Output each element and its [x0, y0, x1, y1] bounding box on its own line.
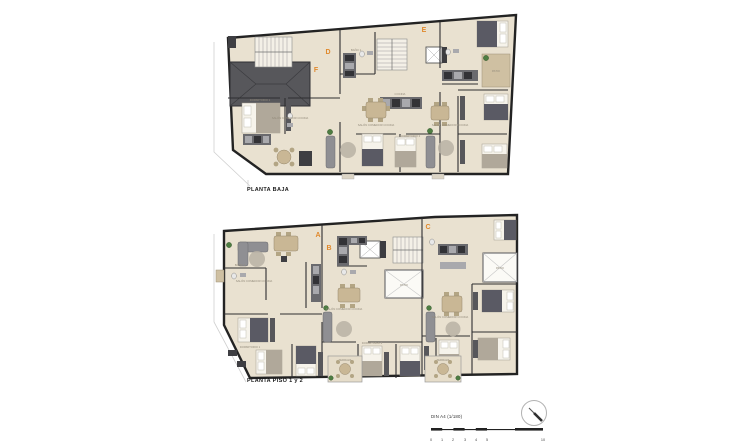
unit-marker-c: C: [425, 224, 430, 231]
wardrobe: [460, 140, 465, 164]
room-label: TERRAZA: [436, 358, 449, 362]
wardrobe: [460, 96, 465, 120]
unit-marker-d: D: [325, 49, 330, 56]
plant-icon: [226, 242, 231, 247]
scale-tick: 2: [452, 438, 454, 442]
staircase: [255, 37, 292, 67]
plant-icon: [327, 129, 332, 134]
bed: [296, 346, 316, 376]
kitchen-counter: [243, 134, 271, 145]
sideboard: [299, 151, 312, 166]
elevator: [426, 47, 447, 63]
rug: [249, 251, 265, 267]
scale-tick: 0: [430, 438, 432, 442]
planta-piso-title: PLANTA PISO 1 y 2: [247, 378, 303, 384]
bed: [362, 346, 382, 376]
louver: [228, 350, 237, 356]
unit-marker-f: F: [314, 67, 319, 74]
room-label: TERRAZA: [338, 358, 351, 362]
sofa: [323, 312, 332, 342]
unit-marker-b: B: [326, 245, 331, 252]
bed: [395, 137, 416, 167]
entry-porch: [228, 36, 236, 48]
bed: [238, 318, 268, 342]
room-label: SALÓN COMEDOR COCINA: [358, 122, 395, 127]
louver: [237, 361, 246, 367]
room-label: SALÓN COMEDOR COCINA: [432, 314, 469, 319]
scale-tick: 10: [541, 438, 545, 442]
unit-marker-a: A: [315, 232, 320, 239]
scale-tick: 3: [464, 438, 466, 442]
sofa: [426, 136, 435, 168]
rug: [438, 140, 454, 156]
room-label: COCINA: [395, 92, 406, 96]
plant-icon: [427, 128, 432, 133]
room-label: DORMITORIO 1: [250, 98, 271, 102]
kitchen-counter: [311, 264, 321, 302]
bed: [256, 350, 282, 374]
room-label: DORMITORIO 2: [362, 341, 383, 345]
room-label: SALÓN COMEDOR COCINA: [326, 306, 363, 311]
bed: [494, 220, 516, 240]
bed: [482, 144, 507, 168]
wardrobe: [473, 292, 478, 310]
scale-tick: 4: [475, 438, 477, 442]
scale-tick: 5: [486, 438, 488, 442]
room-label: DORMITORIO 2: [400, 134, 421, 138]
unit-marker-e: E: [422, 27, 427, 34]
compass-icon: [518, 398, 550, 430]
room-label: PATIO: [496, 266, 505, 270]
room-label: BAÑO 1: [235, 262, 246, 267]
room-label: SALÓN COMEDOR COCINA: [432, 122, 469, 127]
bed: [484, 94, 508, 120]
room-label: BAÑO 1: [351, 47, 362, 52]
bed: [478, 338, 510, 360]
floorplan-sheet: D E F SALÓN COMEDOR COCINA SALÓN COMEDOR…: [0, 0, 756, 443]
wardrobe: [384, 352, 389, 376]
staircase: [393, 237, 423, 263]
wardrobe: [318, 352, 323, 376]
wardrobe: [473, 340, 478, 358]
entry-step: [432, 174, 444, 179]
bed: [477, 21, 508, 47]
bed: [400, 346, 420, 376]
plant-icon: [427, 306, 432, 311]
room-label: SALÓN COMEDOR COCINA: [272, 115, 309, 120]
bed: [482, 290, 514, 312]
scale-tick: 1: [441, 438, 443, 442]
kitchen-counter: [442, 70, 478, 81]
room-label: PATIO: [492, 69, 501, 73]
rug: [446, 322, 461, 337]
rug: [336, 321, 352, 337]
staircase: [377, 39, 407, 70]
balcony: [216, 270, 224, 282]
entry-step: [342, 174, 354, 179]
planta-baja-plan: D E F SALÓN COMEDOR COCINA SALÓN COMEDOR…: [210, 4, 522, 188]
sideboard: [281, 256, 287, 262]
room-label: SALÓN COMEDOR COCINA: [236, 278, 273, 283]
kitchen-counter: [343, 53, 356, 78]
scale-ticks: 0 1 2 3 4 5 10: [430, 438, 550, 443]
room-label: DORMITORIO 1: [240, 345, 261, 349]
bed: [362, 134, 383, 166]
planta-piso-plan: A B C SALÓN COMEDOR COCINA SALÓN COMEDOR…: [210, 212, 522, 384]
room-label: PATIO: [400, 283, 409, 287]
sofa: [326, 136, 335, 168]
wardrobe: [270, 318, 275, 342]
plant-icon: [483, 55, 488, 60]
planta-baja-title: PLANTA BAJA: [247, 187, 289, 193]
rug: [340, 142, 356, 158]
